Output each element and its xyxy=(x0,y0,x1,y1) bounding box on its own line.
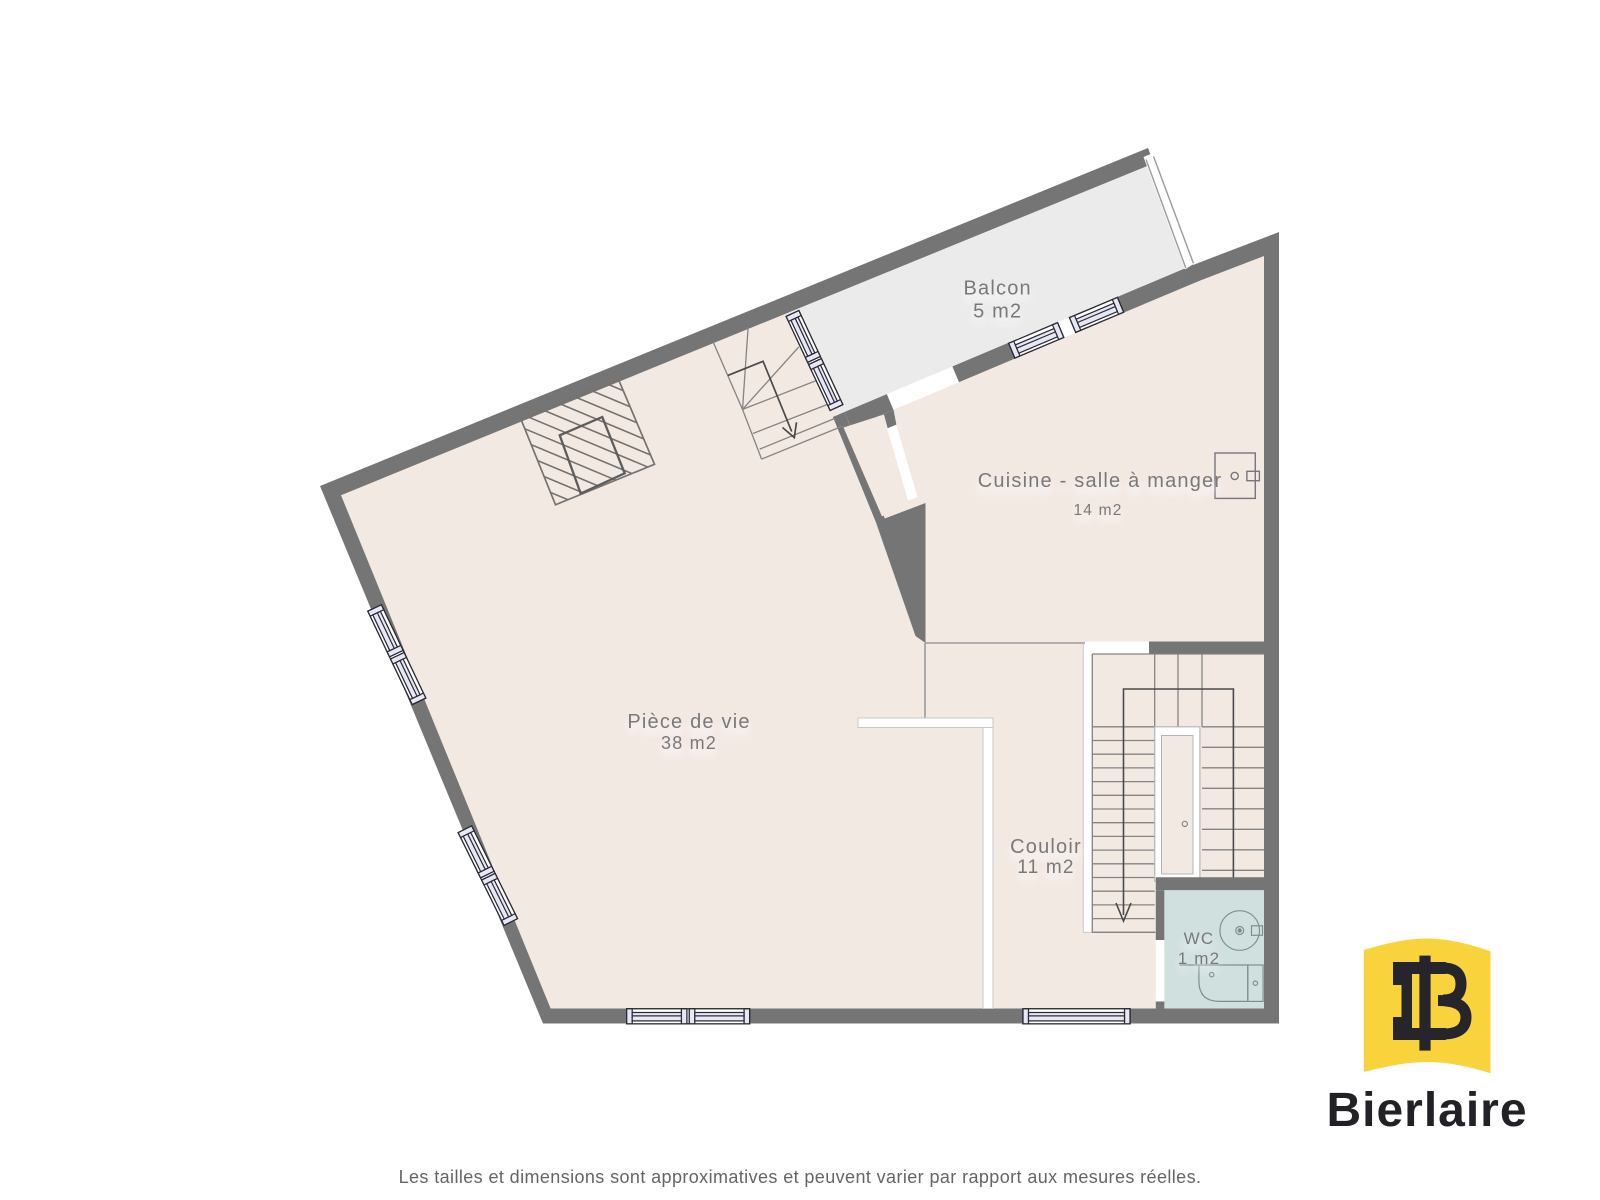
svg-text:38 m2: 38 m2 xyxy=(661,733,717,753)
svg-text:Pièce de vie: Pièce de vie xyxy=(627,711,750,733)
svg-text:Cuisine - salle à manger: Cuisine - salle à manger xyxy=(978,470,1222,492)
svg-text:5 m2: 5 m2 xyxy=(973,301,1022,323)
svg-text:WC: WC xyxy=(1184,929,1215,948)
svg-text:14 m2: 14 m2 xyxy=(1073,502,1122,519)
svg-text:Bierlaire: Bierlaire xyxy=(1326,1084,1527,1137)
svg-text:Couloir: Couloir xyxy=(1010,836,1082,858)
svg-text:11 m2: 11 m2 xyxy=(1017,857,1074,878)
svg-text:Balcon: Balcon xyxy=(964,278,1032,300)
svg-text:Les tailles et dimensions sont: Les tailles et dimensions sont approxima… xyxy=(399,1167,1202,1187)
svg-text:1 m2: 1 m2 xyxy=(1178,949,1221,968)
